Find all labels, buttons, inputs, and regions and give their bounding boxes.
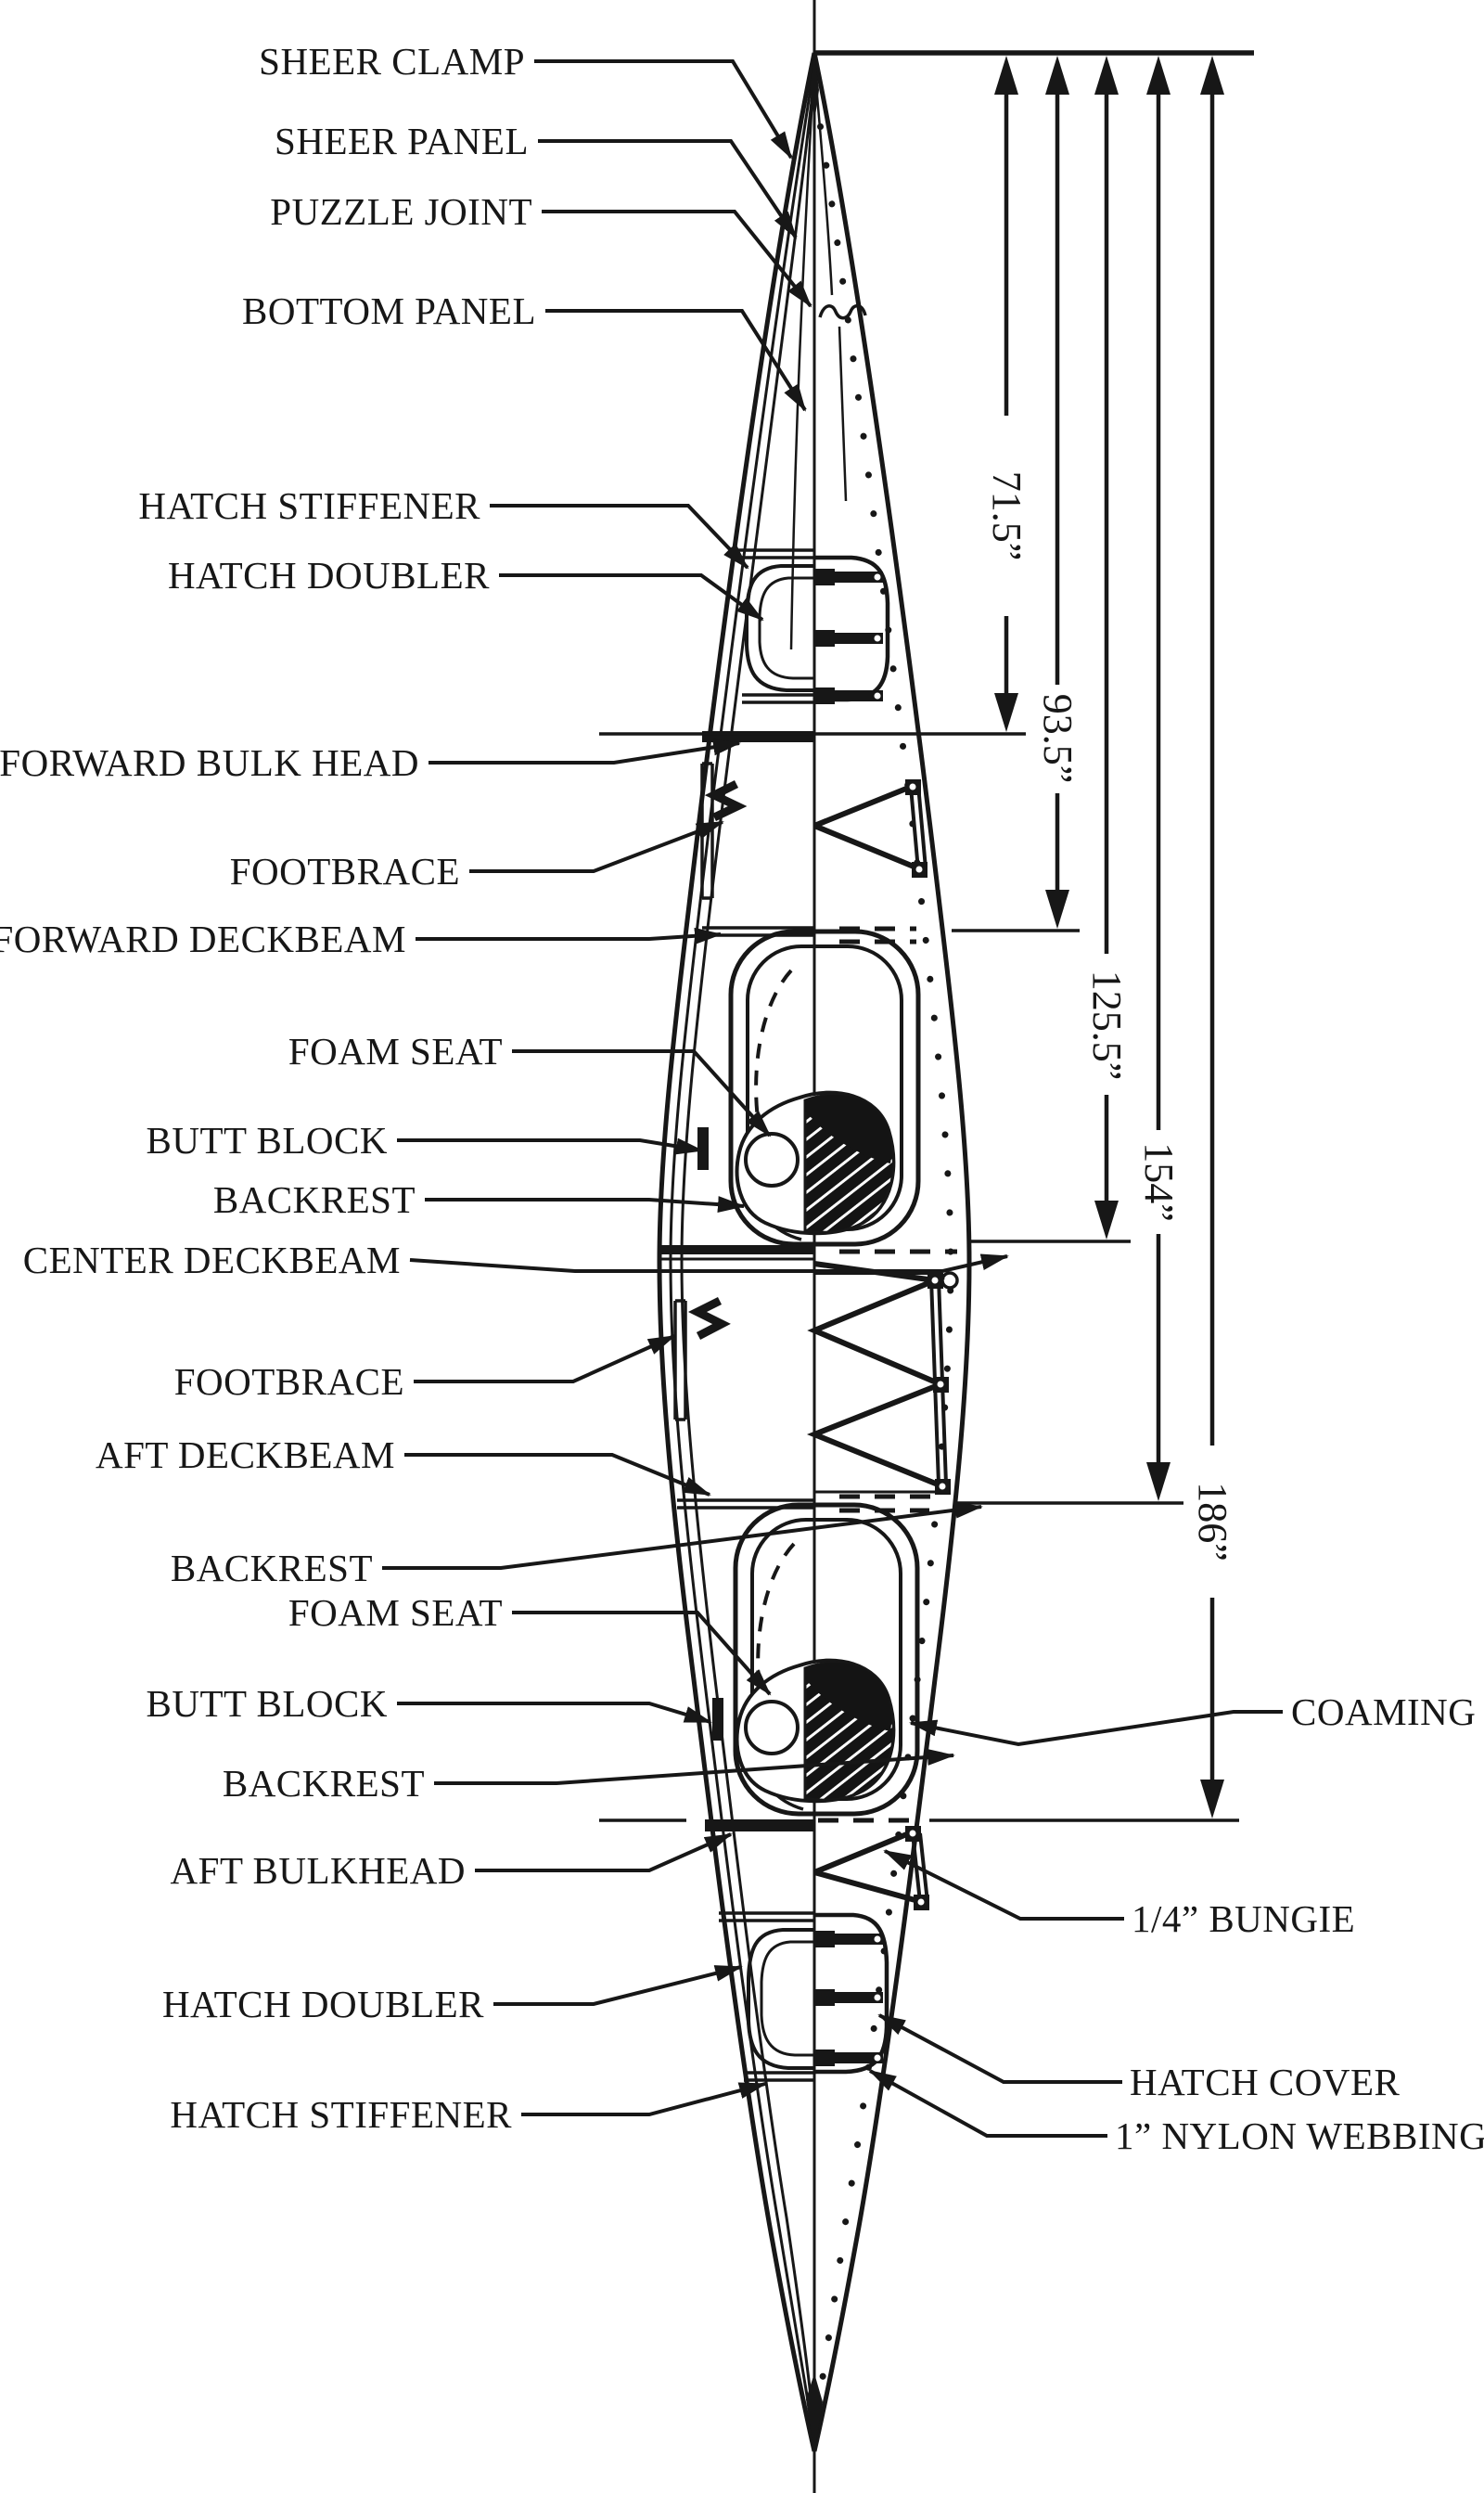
leader-aft-deckbeam bbox=[404, 1455, 710, 1495]
label-foam-seat-fwd: FOAM SEAT bbox=[288, 1030, 503, 1073]
forward-hatch bbox=[735, 550, 888, 704]
leader-coaming bbox=[911, 1712, 1283, 1744]
dim-label-125-5: 125.5” bbox=[1084, 970, 1130, 1081]
label-forward-deckbeam: FORWARD DECKBEAM bbox=[0, 918, 406, 960]
dim-label-71-5: 71.5” bbox=[984, 471, 1030, 561]
leader-backrest-fwd bbox=[425, 1200, 744, 1206]
aft-butt-block-cleat bbox=[712, 1698, 723, 1741]
leader-hatch-stiffener-aft bbox=[521, 2084, 765, 2114]
leader-footbrace-aft bbox=[414, 1336, 674, 1381]
leader-foam-seat-aft bbox=[512, 1613, 770, 1694]
forward-hatch-doubler-outline bbox=[747, 566, 814, 690]
aft-hatch-stiffener-outline bbox=[761, 1942, 814, 2055]
forward-cockpit bbox=[697, 932, 957, 1288]
aft-deckbeam-lines bbox=[677, 1492, 948, 1510]
forward-foam-seat bbox=[737, 1093, 894, 1234]
label-aft-bulkhead: AFT BULKHEAD bbox=[171, 1849, 466, 1892]
label-sheer-clamp: SHEER CLAMP bbox=[259, 40, 525, 83]
aft-hatch-straps bbox=[814, 1931, 883, 2066]
leader-butt-block-fwd bbox=[397, 1140, 702, 1150]
leader-forward-deckbeam bbox=[416, 934, 721, 939]
label-footbrace-aft: FOOTBRACE bbox=[174, 1360, 404, 1403]
forward-hatch-stiffener-outline bbox=[760, 578, 814, 678]
label-hatch-doubler-aft: HATCH DOUBLER bbox=[162, 1983, 484, 2025]
label-hatch-stiffener-aft: HATCH STIFFENER bbox=[170, 2093, 512, 2136]
label-coaming: COAMING bbox=[1291, 1690, 1476, 1733]
label-hatch-stiffener-fwd: HATCH STIFFENER bbox=[138, 484, 480, 527]
label-hatch-doubler-fwd: HATCH DOUBLER bbox=[168, 554, 490, 597]
label-hatch-cover: HATCH COVER bbox=[1130, 2061, 1401, 2103]
label-backrest-fwd: BACKREST bbox=[213, 1178, 416, 1221]
kayak-plan-drawing: 71.5” 93.5” 125.5” 154” 186” bbox=[0, 0, 1484, 2493]
label-nylon-webbing: 1” NYLON WEBBING bbox=[1115, 2114, 1484, 2157]
leader-forward-bulk-head bbox=[429, 743, 739, 763]
part-labels-left: SHEER CLAMP SHEER PANEL PUZZLE JOINT BOT… bbox=[0, 40, 536, 2136]
dimension-71-5: 71.5” bbox=[984, 56, 1030, 732]
label-forward-bulk-head: FORWARD BULK HEAD bbox=[0, 741, 419, 784]
label-backrest-mid: BACKREST bbox=[171, 1547, 373, 1589]
label-bottom-panel: BOTTOM PANEL bbox=[242, 289, 536, 332]
dimension-125-5: 125.5” bbox=[1084, 56, 1130, 1240]
forward-hatch-straps bbox=[814, 569, 883, 704]
mid-deck-bungee bbox=[814, 1264, 951, 1495]
dimension-186: 186” bbox=[1190, 56, 1235, 1818]
part-labels-right: COAMING 1/4” BUNGIE HATCH COVER 1” NYLON… bbox=[1115, 1690, 1484, 2157]
leader-hatch-doubler-aft bbox=[493, 1967, 741, 2004]
label-sheer-panel: SHEER PANEL bbox=[275, 120, 529, 162]
leader-hatch-doubler-fwd bbox=[499, 575, 762, 620]
deck-seam bbox=[814, 65, 865, 501]
label-center-deckbeam: CENTER DECKBEAM bbox=[23, 1239, 401, 1281]
label-quarter-bungie: 1/4” BUNGIE bbox=[1132, 1897, 1355, 1940]
leader-sheer-clamp bbox=[534, 61, 791, 158]
aft-hatch-doubler-outline bbox=[748, 1930, 814, 2068]
leader-hatch-stiffener-fwd bbox=[490, 506, 748, 568]
leader-footbrace-fwd bbox=[469, 822, 723, 871]
label-foam-seat-aft: FOAM SEAT bbox=[288, 1591, 503, 1634]
dim-label-186: 186” bbox=[1190, 1482, 1235, 1561]
forward-deck-bungee bbox=[814, 779, 927, 878]
kayak-plan-page: 71.5” 93.5” 125.5” 154” 186” bbox=[0, 0, 1484, 2493]
leader-sheer-panel bbox=[538, 141, 796, 238]
label-backrest-aft: BACKREST bbox=[223, 1762, 425, 1805]
label-butt-block-fwd: BUTT BLOCK bbox=[146, 1119, 388, 1162]
label-butt-block-aft: BUTT BLOCK bbox=[146, 1682, 388, 1725]
label-puzzle-joint: PUZZLE JOINT bbox=[270, 190, 532, 233]
label-aft-deckbeam: AFT DECKBEAM bbox=[96, 1433, 395, 1476]
leader-hatch-cover bbox=[879, 2015, 1122, 2082]
center-deckbeam-lines bbox=[660, 1245, 957, 1259]
dimension-93-5: 93.5” bbox=[1035, 56, 1081, 929]
label-footbrace-fwd: FOOTBRACE bbox=[230, 850, 460, 893]
aft-bulkhead-bar bbox=[705, 1819, 814, 1831]
dim-label-93-5: 93.5” bbox=[1035, 694, 1081, 784]
forward-butt-block-circle bbox=[746, 1134, 798, 1186]
leader-butt-block-aft bbox=[397, 1703, 710, 1722]
dimension-154: 154” bbox=[1136, 56, 1182, 1501]
dim-label-154: 154” bbox=[1136, 1142, 1182, 1222]
aft-butt-block-circle bbox=[746, 1702, 798, 1754]
leader-aft-bulkhead bbox=[475, 1834, 731, 1870]
